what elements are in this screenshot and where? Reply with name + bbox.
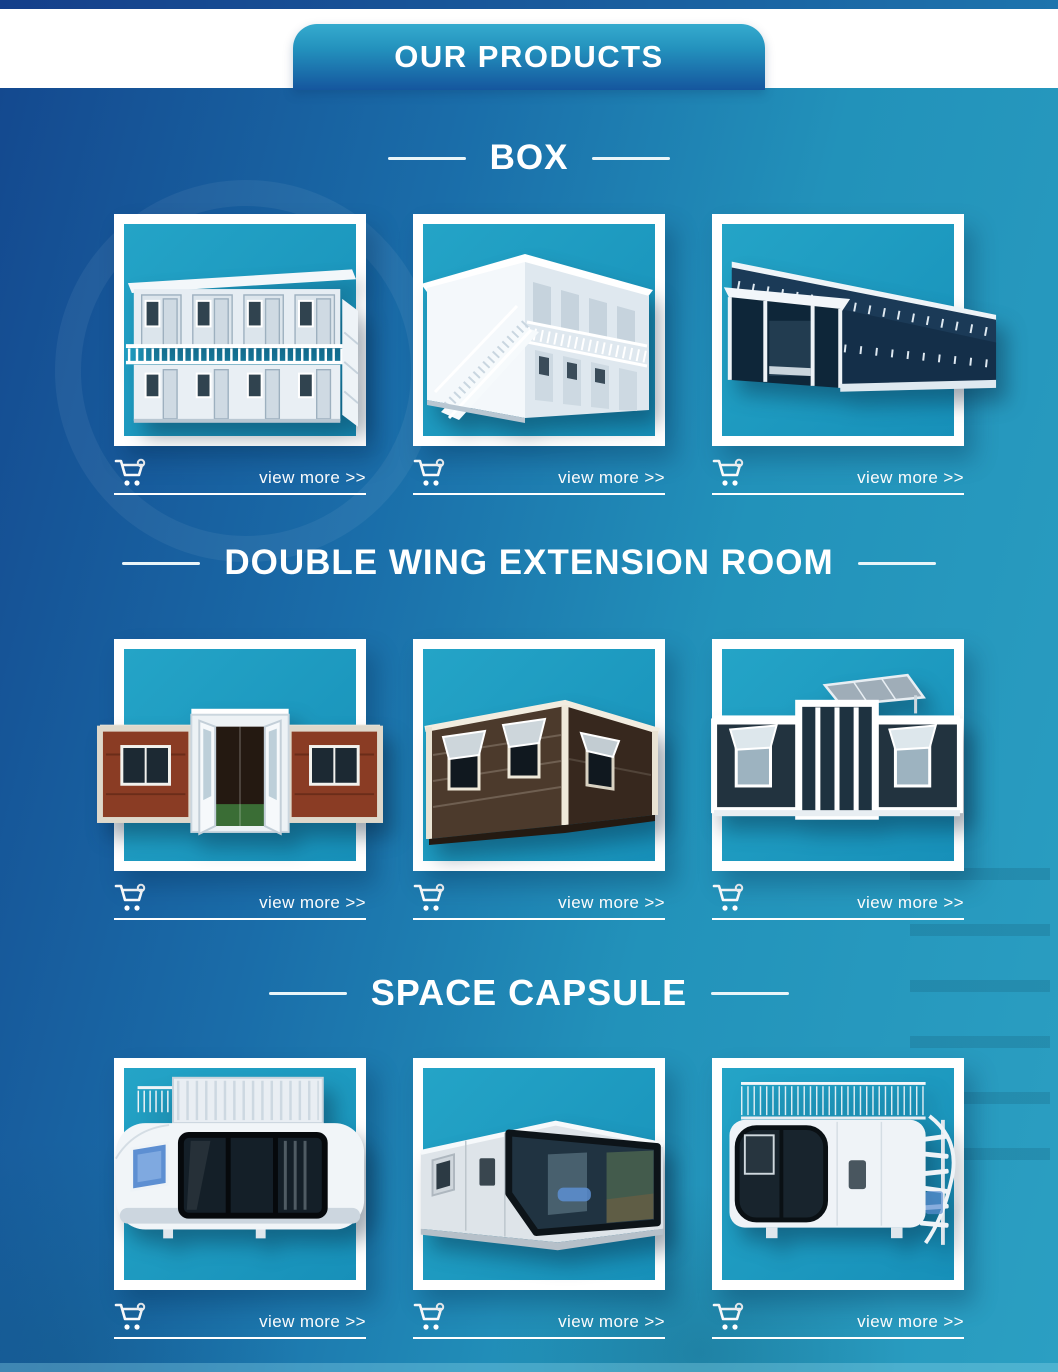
products-banner: OUR PRODUCTS: [293, 24, 765, 90]
product-card: view more >>: [712, 639, 964, 920]
product-photo-box-1: [122, 234, 358, 431]
product-card: view more >>: [413, 214, 665, 495]
product-photo-capsule-1: [108, 1064, 374, 1261]
product-row-double-wing: view more >>: [0, 639, 1058, 920]
shopping-cart-icon[interactable]: [712, 458, 746, 488]
view-more-link[interactable]: view more >>: [857, 468, 964, 488]
title-line: [711, 992, 789, 995]
top-divider-strip: [0, 0, 1058, 9]
title-line: [122, 562, 200, 565]
view-more-link[interactable]: view more >>: [259, 1312, 366, 1332]
shopping-cart-icon[interactable]: [712, 1302, 746, 1332]
section-heading: SPACE CAPSULE: [371, 972, 687, 1014]
section-title-box: BOX: [0, 138, 1058, 178]
product-row-space-capsule: view more >>: [0, 1058, 1058, 1339]
product-image[interactable]: [413, 1058, 665, 1290]
product-photo-double-wing-1: [96, 677, 384, 866]
product-row-box: view more >>: [0, 214, 1058, 495]
view-more-link[interactable]: view more >>: [259, 468, 366, 488]
shopping-cart-icon[interactable]: [712, 883, 746, 913]
product-card: view more >>: [712, 214, 964, 495]
product-card: view more >>: [413, 639, 665, 920]
section-heading: DOUBLE WING EXTENSION ROOM: [224, 543, 833, 583]
product-action-row: view more >>: [712, 452, 964, 495]
view-more-link[interactable]: view more >>: [558, 468, 665, 488]
section-title-double-wing: DOUBLE WING EXTENSION ROOM: [0, 543, 1058, 583]
product-action-row: view more >>: [413, 452, 665, 495]
product-action-row: view more >>: [712, 1296, 964, 1339]
title-line: [592, 157, 670, 160]
product-image[interactable]: [712, 214, 964, 446]
shopping-cart-icon[interactable]: [413, 458, 447, 488]
product-action-row: view more >>: [114, 452, 366, 495]
product-photo-capsule-3: [716, 1068, 966, 1260]
bottom-divider-strip: [0, 1363, 1058, 1372]
banner-title: OUR PRODUCTS: [394, 39, 663, 75]
product-action-row: view more >>: [413, 877, 665, 920]
section-heading: BOX: [490, 138, 569, 178]
product-card: view more >>: [712, 1058, 964, 1339]
product-image[interactable]: [413, 214, 665, 446]
products-panel: BOX: [0, 88, 1058, 1372]
product-photo-double-wing-2: [415, 663, 665, 853]
shopping-cart-icon[interactable]: [413, 883, 447, 913]
product-card: view more >>: [413, 1058, 665, 1339]
product-photo-box-3: [714, 232, 1000, 429]
title-line: [388, 157, 466, 160]
view-more-link[interactable]: view more >>: [857, 893, 964, 913]
shopping-cart-icon[interactable]: [114, 883, 148, 913]
product-image[interactable]: [114, 214, 366, 446]
product-card: view more >>: [114, 1058, 366, 1339]
view-more-link[interactable]: view more >>: [857, 1312, 964, 1332]
section-title-space-capsule: SPACE CAPSULE: [0, 972, 1058, 1014]
product-image[interactable]: [413, 639, 665, 871]
product-photo-capsule-2: [411, 1084, 675, 1280]
shopping-cart-icon[interactable]: [413, 1302, 447, 1332]
shopping-cart-icon[interactable]: [114, 1302, 148, 1332]
view-more-link[interactable]: view more >>: [558, 893, 665, 913]
product-photo-box-2: [417, 230, 657, 430]
view-more-link[interactable]: view more >>: [558, 1312, 665, 1332]
view-more-link[interactable]: view more >>: [259, 893, 366, 913]
product-image[interactable]: [712, 1058, 964, 1290]
product-card: view more >>: [114, 639, 366, 920]
shopping-cart-icon[interactable]: [114, 458, 148, 488]
product-action-row: view more >>: [114, 877, 366, 920]
product-photo-double-wing-3: [706, 659, 968, 850]
title-line: [858, 562, 936, 565]
product-action-row: view more >>: [413, 1296, 665, 1339]
product-image[interactable]: [114, 639, 366, 871]
product-action-row: view more >>: [712, 877, 964, 920]
title-line: [269, 992, 347, 995]
product-card: view more >>: [114, 214, 366, 495]
product-action-row: view more >>: [114, 1296, 366, 1339]
page-background: OUR PRODUCTS BOX: [0, 0, 1058, 1372]
product-image[interactable]: [114, 1058, 366, 1290]
product-image[interactable]: [712, 639, 964, 871]
